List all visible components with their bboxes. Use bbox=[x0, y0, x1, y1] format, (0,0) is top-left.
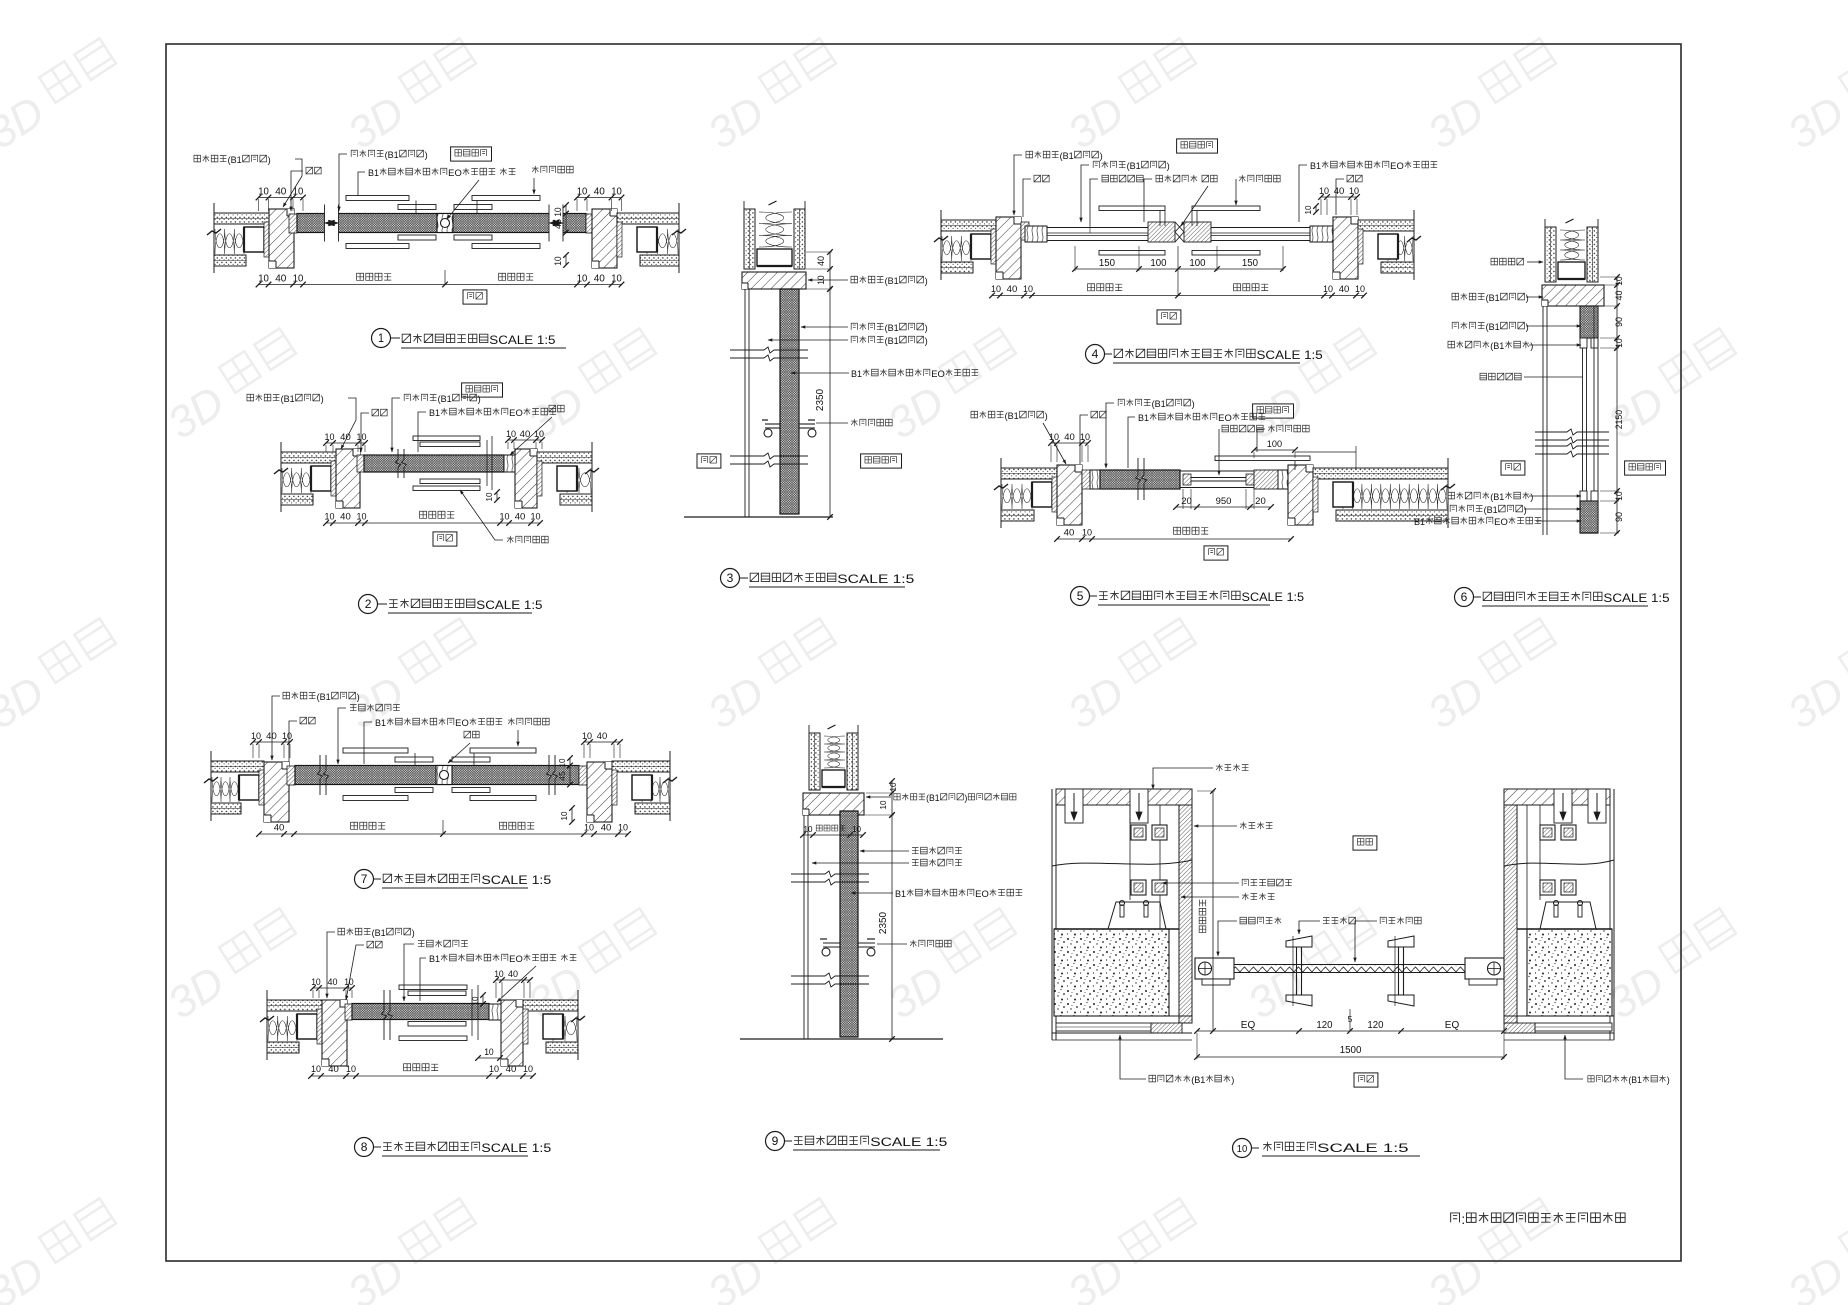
svg-text:(B1: (B1 bbox=[1152, 398, 1166, 409]
svg-text:10: 10 bbox=[282, 731, 292, 742]
svg-text:SCALE 1:5: SCALE 1:5 bbox=[481, 873, 551, 887]
svg-text:10: 10 bbox=[1323, 284, 1333, 295]
svg-text:40: 40 bbox=[508, 969, 518, 979]
svg-text:B1: B1 bbox=[429, 953, 440, 964]
svg-text:20: 20 bbox=[1255, 496, 1266, 507]
svg-text:40: 40 bbox=[515, 512, 526, 523]
svg-text:10: 10 bbox=[494, 969, 504, 979]
svg-text:(B1: (B1 bbox=[1486, 292, 1500, 303]
svg-text:): ) bbox=[1526, 292, 1529, 303]
svg-text:10: 10 bbox=[258, 274, 269, 285]
svg-text:SCALE 1:5: SCALE 1:5 bbox=[837, 572, 914, 586]
svg-text:40: 40 bbox=[1614, 291, 1624, 301]
svg-text:90: 90 bbox=[1614, 512, 1624, 522]
svg-text:10: 10 bbox=[577, 274, 588, 285]
svg-text:): ) bbox=[1167, 160, 1170, 171]
svg-text:(B1: (B1 bbox=[385, 149, 399, 160]
svg-text:120: 120 bbox=[1316, 1020, 1333, 1031]
svg-text:40: 40 bbox=[601, 823, 612, 834]
svg-text:10: 10 bbox=[534, 429, 544, 440]
svg-text:40: 40 bbox=[597, 731, 608, 742]
svg-text:EQ: EQ bbox=[1241, 1020, 1256, 1031]
svg-text:40: 40 bbox=[274, 823, 285, 834]
svg-text:): ) bbox=[478, 393, 481, 404]
svg-text:): ) bbox=[1231, 1074, 1234, 1085]
svg-text:40: 40 bbox=[328, 1064, 339, 1075]
svg-text:(B1: (B1 bbox=[1060, 150, 1074, 161]
svg-text:EO: EO bbox=[931, 368, 945, 379]
svg-text:): ) bbox=[925, 335, 928, 346]
svg-text:10: 10 bbox=[293, 274, 304, 285]
svg-text:950: 950 bbox=[1216, 496, 1232, 507]
svg-text:SCALE 1:5: SCALE 1:5 bbox=[489, 333, 556, 347]
svg-text:40: 40 bbox=[1339, 284, 1350, 295]
svg-text:): ) bbox=[1667, 1075, 1670, 1085]
svg-text:): ) bbox=[412, 927, 415, 938]
svg-text:2350: 2350 bbox=[878, 911, 889, 934]
svg-text:(B1: (B1 bbox=[1005, 410, 1019, 421]
svg-text:40: 40 bbox=[266, 731, 277, 742]
svg-text:2150: 2150 bbox=[1614, 410, 1624, 430]
svg-text:10: 10 bbox=[991, 284, 1001, 295]
svg-text:(B1: (B1 bbox=[1127, 160, 1141, 171]
svg-text:40: 40 bbox=[594, 274, 606, 285]
svg-text:5: 5 bbox=[1077, 589, 1084, 603]
svg-text:B1: B1 bbox=[368, 167, 379, 178]
svg-text:40: 40 bbox=[506, 1064, 517, 1075]
svg-text:45: 45 bbox=[557, 771, 567, 781]
svg-text:10: 10 bbox=[584, 823, 594, 834]
svg-text:40: 40 bbox=[1007, 284, 1018, 295]
svg-text:120: 120 bbox=[1367, 1020, 1384, 1031]
svg-text:): ) bbox=[925, 322, 928, 333]
svg-text:10: 10 bbox=[251, 731, 261, 742]
svg-text:10: 10 bbox=[311, 1064, 321, 1075]
svg-text:SCALE 1:5: SCALE 1:5 bbox=[870, 1135, 947, 1149]
svg-text:10: 10 bbox=[582, 731, 592, 742]
svg-text:40: 40 bbox=[1064, 432, 1075, 443]
svg-text:10: 10 bbox=[878, 800, 888, 809]
svg-text:150: 150 bbox=[1242, 258, 1259, 269]
svg-text:100: 100 bbox=[1189, 258, 1206, 269]
svg-text::: : bbox=[1461, 1212, 1465, 1227]
svg-text:(B1: (B1 bbox=[885, 335, 899, 346]
svg-text:10: 10 bbox=[357, 432, 367, 443]
svg-text:(B1: (B1 bbox=[885, 322, 899, 333]
svg-text:): ) bbox=[964, 793, 967, 803]
svg-text:10: 10 bbox=[484, 492, 494, 501]
svg-text:10: 10 bbox=[311, 977, 321, 987]
svg-text:10: 10 bbox=[1049, 432, 1059, 443]
svg-text:EO: EO bbox=[1218, 412, 1232, 423]
svg-text:10: 10 bbox=[1614, 491, 1624, 501]
svg-text:(B1: (B1 bbox=[1490, 340, 1504, 351]
svg-text:40: 40 bbox=[1334, 186, 1345, 197]
svg-text:(B1: (B1 bbox=[1484, 504, 1498, 515]
svg-text:SCALE 1:5: SCALE 1:5 bbox=[481, 1141, 551, 1155]
svg-text:10: 10 bbox=[611, 187, 622, 198]
svg-text:): ) bbox=[357, 691, 360, 702]
svg-text:40: 40 bbox=[816, 256, 826, 266]
svg-text:10: 10 bbox=[325, 512, 335, 523]
svg-text:B1: B1 bbox=[375, 717, 386, 728]
svg-text:10: 10 bbox=[1082, 528, 1092, 539]
svg-text:(B1: (B1 bbox=[1628, 1075, 1642, 1085]
svg-text:8: 8 bbox=[361, 1140, 368, 1154]
svg-text:10: 10 bbox=[325, 432, 335, 443]
svg-text:45: 45 bbox=[553, 219, 563, 229]
svg-text:40: 40 bbox=[275, 274, 287, 285]
svg-text:10: 10 bbox=[523, 1064, 533, 1075]
svg-text:9: 9 bbox=[772, 1134, 779, 1148]
svg-text:40: 40 bbox=[594, 187, 606, 198]
svg-text:10: 10 bbox=[611, 274, 622, 285]
svg-text:(B1: (B1 bbox=[1486, 321, 1500, 332]
svg-text:B1: B1 bbox=[895, 888, 906, 899]
svg-text:B1: B1 bbox=[1138, 412, 1149, 423]
svg-text:40: 40 bbox=[1064, 528, 1075, 539]
svg-text:10: 10 bbox=[506, 429, 516, 440]
svg-text:40: 40 bbox=[328, 977, 338, 987]
svg-text:100: 100 bbox=[1150, 258, 1167, 269]
svg-text:4: 4 bbox=[1092, 347, 1099, 361]
svg-text:(B1: (B1 bbox=[228, 154, 242, 165]
svg-text:SCALE 1:5: SCALE 1:5 bbox=[1242, 590, 1305, 604]
svg-text:): ) bbox=[1100, 150, 1103, 161]
svg-text:EO: EO bbox=[448, 167, 462, 178]
svg-text:B1: B1 bbox=[429, 407, 440, 418]
svg-text:EO: EO bbox=[509, 953, 523, 964]
svg-text:): ) bbox=[425, 149, 428, 160]
svg-text:10: 10 bbox=[484, 1047, 494, 1057]
svg-text:(B1: (B1 bbox=[281, 393, 295, 404]
svg-text:(B1: (B1 bbox=[438, 393, 452, 404]
svg-text:10: 10 bbox=[559, 811, 569, 820]
svg-text:7: 7 bbox=[361, 872, 368, 886]
svg-text:(B1: (B1 bbox=[1191, 1074, 1205, 1085]
svg-text:10: 10 bbox=[1355, 284, 1365, 295]
svg-text:2: 2 bbox=[365, 597, 372, 611]
svg-text:SCALE 1:5: SCALE 1:5 bbox=[476, 598, 543, 612]
svg-text:10: 10 bbox=[346, 1064, 356, 1075]
svg-text:SCALE 1:5: SCALE 1:5 bbox=[1317, 1141, 1409, 1155]
svg-text:10: 10 bbox=[1614, 276, 1624, 286]
svg-text:10: 10 bbox=[852, 824, 861, 834]
svg-text:1: 1 bbox=[378, 331, 384, 345]
svg-text:(B1: (B1 bbox=[885, 275, 899, 286]
svg-text:10: 10 bbox=[1303, 205, 1313, 214]
svg-text:SCALE 1:5: SCALE 1:5 bbox=[1257, 348, 1324, 362]
svg-text:(B1: (B1 bbox=[372, 927, 386, 938]
svg-text:10: 10 bbox=[531, 512, 541, 523]
svg-text:10: 10 bbox=[1349, 186, 1359, 197]
svg-text:40: 40 bbox=[275, 187, 287, 198]
svg-text:10: 10 bbox=[500, 512, 510, 523]
svg-text:10: 10 bbox=[1080, 432, 1090, 443]
svg-text:10: 10 bbox=[888, 782, 898, 791]
svg-text:EO: EO bbox=[1494, 516, 1508, 527]
svg-text:EQ: EQ bbox=[1445, 1020, 1460, 1031]
svg-text:10: 10 bbox=[489, 1064, 499, 1075]
svg-text:150: 150 bbox=[1099, 258, 1116, 269]
svg-text:10: 10 bbox=[618, 823, 628, 834]
svg-text:10: 10 bbox=[470, 996, 480, 1005]
svg-text:(B1: (B1 bbox=[1490, 491, 1504, 502]
svg-text:(B1: (B1 bbox=[317, 691, 331, 702]
svg-text:10: 10 bbox=[553, 207, 563, 217]
svg-text:): ) bbox=[925, 275, 928, 286]
svg-text:10: 10 bbox=[577, 187, 588, 198]
svg-text:B1: B1 bbox=[1414, 516, 1425, 527]
svg-text:10: 10 bbox=[557, 758, 567, 767]
svg-text:B1: B1 bbox=[851, 368, 862, 379]
svg-text:B1: B1 bbox=[1310, 160, 1321, 171]
svg-text:EO: EO bbox=[1390, 160, 1404, 171]
svg-text:): ) bbox=[1524, 504, 1527, 515]
svg-text:6: 6 bbox=[1461, 590, 1468, 604]
svg-text:): ) bbox=[321, 393, 324, 404]
svg-text:10: 10 bbox=[258, 187, 269, 198]
svg-text:(B1: (B1 bbox=[926, 793, 940, 803]
svg-text:90: 90 bbox=[1614, 317, 1624, 327]
svg-text:10: 10 bbox=[1319, 186, 1329, 197]
svg-text:EO: EO bbox=[455, 717, 469, 728]
svg-text:): ) bbox=[1530, 340, 1533, 351]
svg-text:): ) bbox=[1530, 491, 1533, 502]
svg-text:5: 5 bbox=[1348, 1014, 1353, 1024]
svg-text:3: 3 bbox=[727, 571, 734, 585]
svg-text:100: 100 bbox=[1267, 439, 1282, 450]
svg-text:10: 10 bbox=[1023, 284, 1033, 295]
svg-text:40: 40 bbox=[340, 512, 351, 523]
svg-text:10: 10 bbox=[553, 256, 563, 266]
svg-text:): ) bbox=[268, 154, 271, 165]
svg-text:2350: 2350 bbox=[815, 388, 826, 411]
svg-text:10: 10 bbox=[804, 824, 813, 834]
svg-text:EO: EO bbox=[975, 888, 989, 899]
svg-text:SCALE 1:5: SCALE 1:5 bbox=[1603, 591, 1670, 605]
svg-text:1500: 1500 bbox=[1340, 1045, 1362, 1056]
svg-text:10: 10 bbox=[357, 512, 367, 523]
svg-text:EO: EO bbox=[509, 407, 523, 418]
svg-text:): ) bbox=[1192, 398, 1195, 409]
svg-text:): ) bbox=[1526, 321, 1529, 332]
svg-text:): ) bbox=[1045, 410, 1048, 421]
svg-text:10: 10 bbox=[1237, 1144, 1248, 1155]
